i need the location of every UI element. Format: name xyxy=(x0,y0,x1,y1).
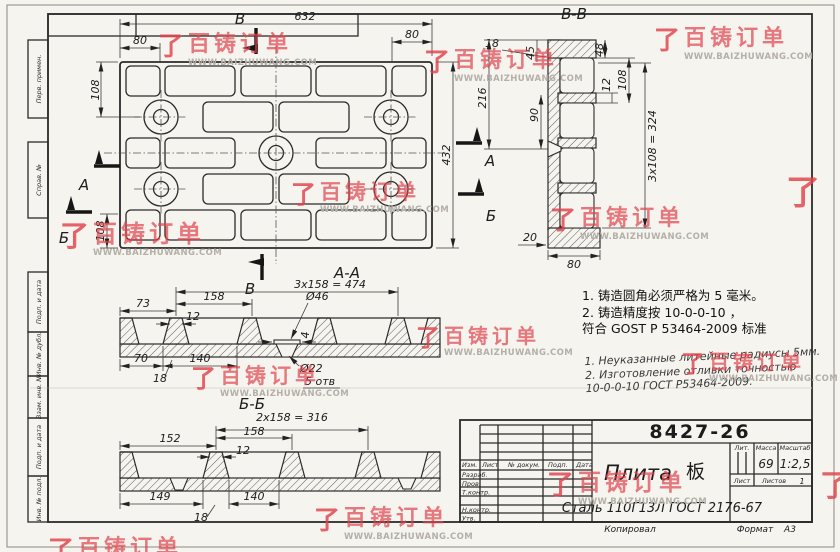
sheets-value: 1 xyxy=(799,477,804,486)
col-doc: № докум. xyxy=(507,461,540,469)
note-line: 2. 铸造精度按 10-0-0-10 ， xyxy=(582,305,767,322)
frame-label: Инв. № дубл. xyxy=(35,332,43,376)
scale-value: 1:2,5 xyxy=(780,457,811,471)
marker-a-left: A xyxy=(78,176,89,194)
sheet-label: Лист xyxy=(733,477,751,485)
marker-g-left: Б xyxy=(59,229,69,247)
dim-108: 108 xyxy=(616,70,629,91)
format-value: A3 xyxy=(783,525,796,535)
dim-80-left: 80 xyxy=(133,34,147,47)
dim-158: 158 xyxy=(244,425,265,438)
notes-chinese: 1. 铸造圆角必须严格为 5 毫米。 2. 铸造精度按 10-0-0-10 ， … xyxy=(582,288,767,338)
dim-3x108: 3x108 = 324 xyxy=(646,110,659,182)
section-gg: Б-Б 2x158 = 316 152 158 12 149 xyxy=(120,395,440,524)
part-name: Плита xyxy=(604,461,672,485)
dim-2x158: 2x158 = 316 xyxy=(256,411,328,424)
material: Сталь 110Г13Л ГОСТ 2176-67 xyxy=(562,501,763,516)
row-nkontr: Н.контр. xyxy=(462,506,491,514)
col-date: Дата xyxy=(575,461,593,469)
dim-48: 48 xyxy=(593,43,606,57)
dim-140: 140 xyxy=(190,352,211,365)
frame-label: Инв. № подл. xyxy=(35,477,43,522)
dim-80-right: 80 xyxy=(405,28,419,41)
frame-label: Перв. примен. xyxy=(35,55,43,104)
marker-g-right: Б xyxy=(486,207,496,225)
mass-label: Масса xyxy=(756,444,777,452)
col-izm: Изм. xyxy=(462,461,477,469)
dim-3x158: 3x158 = 474 xyxy=(294,278,366,291)
row-razrab: Разраб. xyxy=(462,471,488,479)
drawing-canvas: Перв. примен. Справ. № Подп. и дата Инв.… xyxy=(0,0,840,552)
dim-12: 12 xyxy=(600,78,613,92)
section-markers: B B A Б A Б xyxy=(59,10,496,298)
row-prov: Пров. xyxy=(462,480,481,488)
dim-152: 152 xyxy=(160,432,181,445)
dim-108-left: 108 xyxy=(89,80,102,101)
dim-12: 12 xyxy=(186,310,200,323)
marker-b-bottom: B xyxy=(245,280,255,298)
lit-label: Лит. xyxy=(734,444,750,452)
dim-632: 632 xyxy=(295,10,316,23)
section-bb: B-B 18 45 216 90 48 12 xyxy=(476,5,659,271)
doc-number: 8427-26 xyxy=(649,421,750,443)
dim-dia22: Ø22 xyxy=(299,362,323,375)
frame-label: Подп. и дата xyxy=(35,425,43,469)
dim-20: 20 xyxy=(523,231,537,244)
scale-label: Масштаб xyxy=(780,444,811,452)
col-list: Лист xyxy=(481,461,499,469)
dim-80: 80 xyxy=(567,258,581,271)
dim-140: 140 xyxy=(244,490,265,503)
dim-108-bottom: 108 xyxy=(94,221,107,242)
dim-90: 90 xyxy=(528,108,541,122)
marker-a-right: A xyxy=(484,152,495,170)
dim-73: 73 xyxy=(136,297,150,310)
sheets-label: Листов xyxy=(761,477,786,485)
section-bb-label: B-B xyxy=(561,5,587,23)
dim-70: 70 xyxy=(134,352,148,365)
dim-18: 18 xyxy=(485,37,499,50)
dim-dia46: Ø46 xyxy=(305,290,329,303)
row-utv: Утв. xyxy=(462,515,476,523)
dim-18: 18 xyxy=(153,372,167,385)
format-label: Формат xyxy=(737,525,774,535)
dim-216: 216 xyxy=(476,88,489,109)
dim-4: 4 xyxy=(299,332,312,339)
gg-dimensions: 2x158 = 316 152 158 12 149 140 18 xyxy=(120,411,368,524)
dim-432: 432 xyxy=(440,145,453,166)
row-tkontr: Т.контр. xyxy=(462,489,490,497)
section-aa: A-A 3x158 = 474 158 73 12 Ø46 xyxy=(120,264,440,388)
frame-left-strip: Перв. примен. Справ. № Подп. и дата Инв.… xyxy=(28,40,48,522)
dim-158: 158 xyxy=(204,290,225,303)
copied-label: Копировал xyxy=(604,525,656,535)
dim-149: 149 xyxy=(150,490,171,503)
frame-label: Подп. и дата xyxy=(35,280,43,324)
note-line: 1. 铸造圆角必须严格为 5 毫米。 xyxy=(582,288,767,305)
dim-45: 45 xyxy=(524,46,537,60)
plan-view: B B A Б A Б 632 80 xyxy=(59,10,496,298)
part-name-cn: 板 xyxy=(686,461,705,483)
frame-label: Взам. инв. № xyxy=(35,375,43,419)
dim-18: 18 xyxy=(194,511,208,524)
title-block: 8427-26 Плита 板 Сталь 110Г13Л ГОСТ 2176-… xyxy=(460,420,812,535)
drawing-sheet: Перв. примен. Справ. № Подп. и дата Инв.… xyxy=(0,0,840,552)
dim-5-holes: 5 отв xyxy=(305,375,335,388)
note-line: 符合 GOST Р 53464-2009 标准 xyxy=(582,321,767,338)
col-sign: Подп. xyxy=(548,461,568,469)
mass-value: 69 xyxy=(758,457,773,471)
frame-label: Справ. № xyxy=(35,164,43,196)
marker-b-top: B xyxy=(235,10,245,28)
dim-12: 12 xyxy=(236,444,250,457)
